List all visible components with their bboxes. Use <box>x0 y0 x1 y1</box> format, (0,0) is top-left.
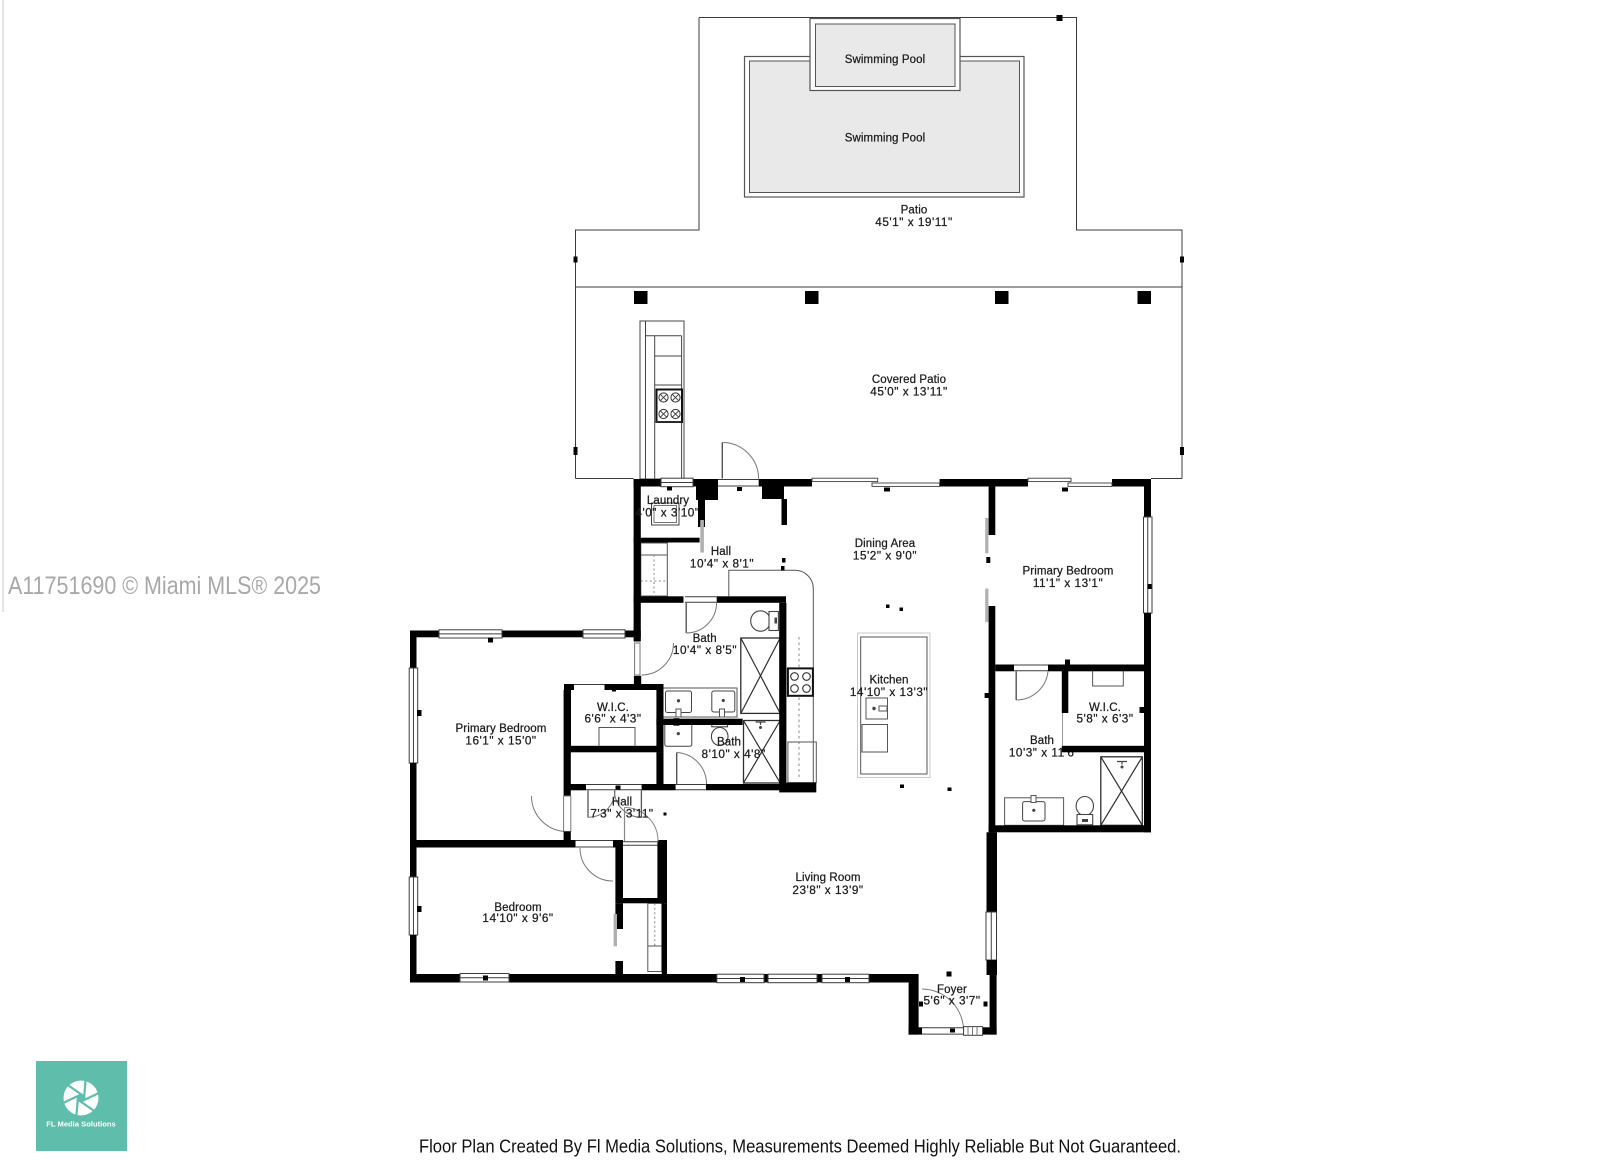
svg-text:8'10" x 4'8": 8'10" x 4'8" <box>702 747 766 761</box>
svg-text:7'3" x 3'11": 7'3" x 3'11" <box>590 807 653 821</box>
svg-text:4'0" x 3'10": 4'0" x 3'10" <box>635 506 699 520</box>
svg-text:Swimming Pool: Swimming Pool <box>845 133 926 145</box>
svg-text:10'4" x 8'5": 10'4" x 8'5" <box>673 643 737 657</box>
svg-text:Floor Plan Created By Fl Media: Floor Plan Created By Fl Media Solutions… <box>419 1137 1181 1157</box>
svg-text:11'1" x 13'1": 11'1" x 13'1" <box>1033 576 1103 590</box>
svg-text:10'4" x 8'1": 10'4" x 8'1" <box>690 557 754 571</box>
svg-text:6'6" x 4'3": 6'6" x 4'3" <box>584 712 641 726</box>
svg-text:5'6" x 3'7": 5'6" x 3'7" <box>923 994 980 1008</box>
svg-text:23'8" x 13'9": 23'8" x 13'9" <box>792 883 863 897</box>
svg-text:Bath: Bath <box>1030 735 1054 747</box>
svg-text:A11751690 © Miami MLS® 2025: A11751690 © Miami MLS® 2025 <box>8 572 321 600</box>
svg-text:5'8" x 6'3": 5'8" x 6'3" <box>1076 712 1133 726</box>
svg-text:45'0" x 13'11": 45'0" x 13'11" <box>870 385 947 399</box>
svg-text:15'2" x 9'0": 15'2" x 9'0" <box>853 549 917 563</box>
svg-text:45'1" x 19'11": 45'1" x 19'11" <box>875 215 952 229</box>
svg-text:14'10" x 9'6": 14'10" x 9'6" <box>482 911 553 925</box>
svg-text:14'10" x 13'3": 14'10" x 13'3" <box>850 685 928 699</box>
svg-text:FL Media Solutions: FL Media Solutions <box>46 1120 115 1129</box>
svg-text:16'1" x 15'0": 16'1" x 15'0" <box>465 734 536 748</box>
svg-text:Swimming Pool: Swimming Pool <box>845 54 926 66</box>
